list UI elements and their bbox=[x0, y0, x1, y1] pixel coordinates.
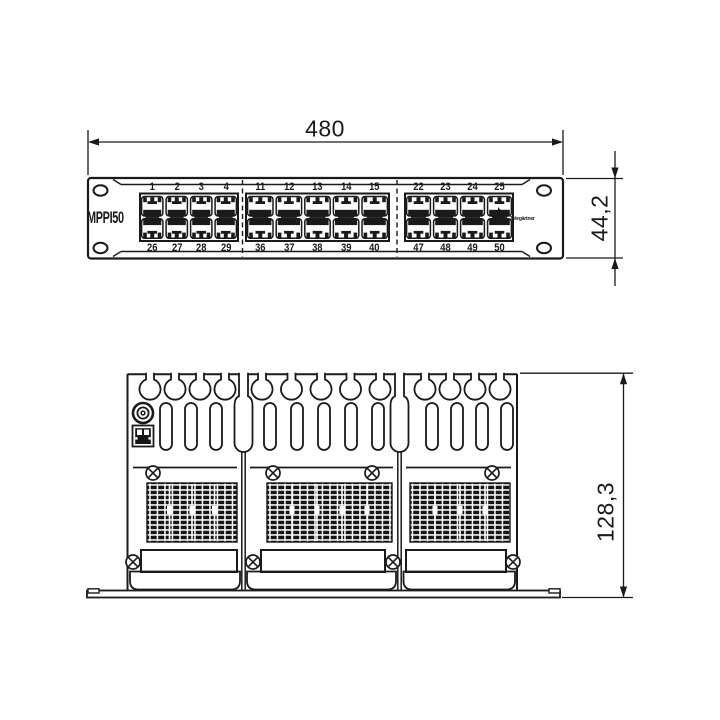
cable-slot bbox=[451, 403, 463, 450]
strain-relief-cutout bbox=[165, 373, 186, 400]
arrowhead-right bbox=[552, 138, 563, 145]
label-window bbox=[141, 550, 506, 572]
fixing-screw bbox=[146, 466, 160, 480]
cable-slot bbox=[318, 403, 330, 450]
joint-keyhole-slot bbox=[391, 373, 409, 452]
port-number: 14 bbox=[334, 181, 358, 193]
module-base bbox=[130, 572, 515, 590]
port-number-row: 22232425 bbox=[405, 181, 513, 193]
strain-relief-cutout bbox=[465, 373, 486, 400]
port-number-row: 1234 bbox=[140, 181, 238, 193]
strain-relief-cutout bbox=[369, 373, 390, 400]
cable-slot bbox=[185, 403, 197, 450]
fixing-screw bbox=[386, 555, 400, 569]
rj45-jack bbox=[488, 197, 512, 239]
rj45-jack bbox=[305, 197, 330, 239]
rear-view bbox=[87, 373, 633, 598]
strain-relief-cutout bbox=[190, 373, 211, 400]
port-number: 2 bbox=[166, 181, 187, 193]
strain-relief-cutout bbox=[340, 373, 361, 400]
rj45-jack bbox=[215, 197, 236, 239]
rj45-jack bbox=[333, 197, 358, 239]
rj45-jack-layer bbox=[142, 197, 512, 239]
cable-slot bbox=[264, 403, 276, 450]
port-number: 25 bbox=[488, 181, 511, 193]
port-number: 4 bbox=[215, 181, 236, 193]
dimension-depth-value: 128,3 bbox=[593, 482, 620, 542]
panel-label: MPPI50 bbox=[87, 209, 124, 228]
rj45-jack bbox=[407, 197, 431, 239]
port-number: 22 bbox=[407, 181, 430, 193]
mounting-hole bbox=[94, 185, 108, 195]
arrowhead-bottom bbox=[620, 587, 627, 598]
cable-slot bbox=[501, 403, 513, 450]
arrowhead-bottom bbox=[611, 258, 618, 269]
port-number: 38 bbox=[305, 242, 329, 254]
strain-relief-cutout bbox=[140, 373, 161, 400]
fixing-screw bbox=[266, 466, 280, 480]
port-number: 23 bbox=[434, 181, 457, 193]
dimension-front-height-value: 44,2 bbox=[587, 195, 614, 242]
joint-keyhole-slot bbox=[235, 373, 253, 452]
arrowhead-top bbox=[611, 168, 618, 179]
port-number: 11 bbox=[248, 181, 272, 193]
port-number-row: 1112131415 bbox=[246, 181, 389, 193]
port-number: 39 bbox=[334, 242, 358, 254]
mounting-hole bbox=[94, 243, 108, 253]
port-number: 47 bbox=[407, 242, 430, 254]
arrowhead-top bbox=[620, 373, 627, 384]
port-number: 26 bbox=[142, 242, 163, 254]
fixing-screw bbox=[365, 466, 379, 480]
strain-relief-cutout bbox=[311, 373, 332, 400]
port-number: 15 bbox=[363, 181, 387, 193]
port-number: 40 bbox=[363, 242, 387, 254]
rj45-jack bbox=[142, 197, 163, 239]
rj45-jack bbox=[461, 197, 485, 239]
rj45-jack bbox=[191, 197, 212, 239]
rj45-jack bbox=[248, 197, 273, 239]
port-number: 27 bbox=[166, 242, 187, 254]
port-number-row: 3637383940 bbox=[246, 242, 389, 254]
strain-relief-cutout bbox=[440, 373, 461, 400]
port-number: 1 bbox=[142, 181, 163, 193]
rj45-jack bbox=[362, 197, 387, 239]
rj45-jack bbox=[434, 197, 458, 239]
strain-relief-cutout bbox=[215, 373, 236, 400]
strain-relief-cutout bbox=[490, 373, 511, 400]
port-number-row: 26272829 bbox=[140, 242, 238, 254]
cable-slot bbox=[476, 403, 488, 450]
dimension-width-value: 480 bbox=[305, 116, 345, 143]
port-number: 13 bbox=[305, 181, 329, 193]
strain-relief-cutout bbox=[252, 373, 273, 400]
grounding-stud-icon bbox=[133, 403, 153, 423]
port-number: 48 bbox=[434, 242, 457, 254]
cable-slot bbox=[426, 403, 438, 450]
strain-relief-cutout bbox=[414, 373, 435, 400]
port-number: 50 bbox=[488, 242, 511, 254]
technical-drawing-canvas: 480 44,2 128,3 MPPI50 Telegärtner 1234 2… bbox=[0, 0, 720, 720]
port-number: 24 bbox=[461, 181, 484, 193]
cable-slot bbox=[291, 403, 303, 450]
shielded-jack-icon bbox=[133, 426, 154, 447]
port-number: 36 bbox=[248, 242, 272, 254]
mounting-hole bbox=[537, 243, 551, 253]
brand-name: Telegärtner bbox=[510, 216, 535, 222]
cable-slot bbox=[372, 403, 384, 450]
front-view bbox=[88, 130, 623, 286]
mounting-hole bbox=[537, 185, 551, 195]
port-number: 3 bbox=[191, 181, 212, 193]
cable-slot bbox=[210, 403, 222, 450]
port-number-row: 47484950 bbox=[405, 242, 513, 254]
fixing-screw bbox=[506, 555, 520, 569]
cable-slot bbox=[345, 403, 357, 450]
port-number: 37 bbox=[277, 242, 301, 254]
arrowhead-left bbox=[88, 138, 99, 145]
rj45-jack bbox=[166, 197, 187, 239]
port-number: 28 bbox=[191, 242, 212, 254]
fixing-screw bbox=[246, 555, 260, 569]
strain-relief-comb bbox=[140, 373, 514, 452]
base-tab bbox=[549, 589, 560, 593]
fixing-screw bbox=[485, 466, 499, 480]
strain-relief-cutout bbox=[281, 373, 302, 400]
port-number: 49 bbox=[461, 242, 484, 254]
fixing-screw bbox=[126, 555, 140, 569]
port-number: 12 bbox=[277, 181, 301, 193]
port-number: 29 bbox=[215, 242, 236, 254]
base-tab bbox=[88, 589, 99, 593]
line-art bbox=[0, 0, 720, 720]
idc-termination-block bbox=[147, 483, 510, 542]
cable-slot bbox=[160, 403, 172, 450]
rj45-jack bbox=[276, 197, 301, 239]
base-bar bbox=[87, 589, 560, 598]
